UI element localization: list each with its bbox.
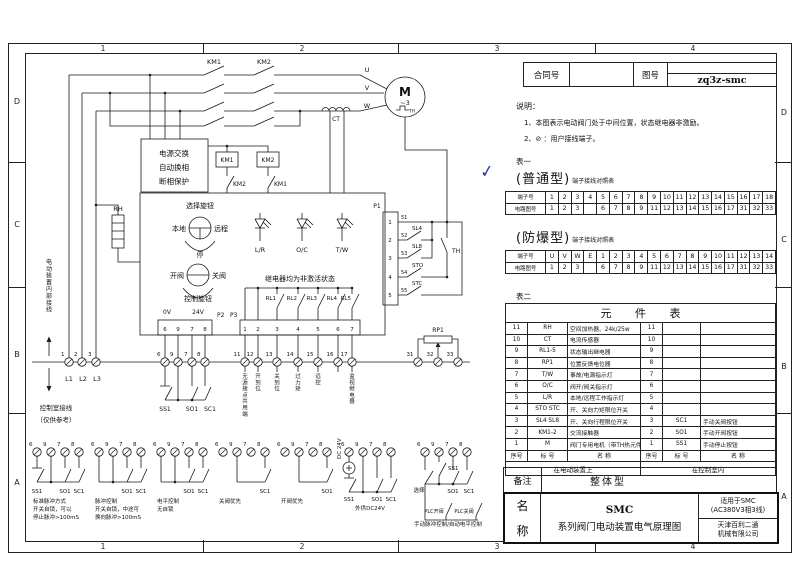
zone-top-2: 2 [282,44,322,53]
comp-header: 名 称 [568,451,641,463]
g7-plc-close: PLC关阀 [454,508,473,515]
terminal-cell: 11 [725,251,738,263]
g4-sc1: SC1 [260,489,271,495]
terminal-cell: 1 [546,192,559,204]
motor-m-label: M [399,85,411,99]
g3-so1: SO1 [183,489,194,495]
wire-52: 52 [401,233,407,239]
relay-state-note: 继电器均为非激活状态 [265,274,335,283]
terminal-cell: 4 [635,251,648,263]
terminal-number: 6 [157,352,161,358]
rh-label: RH [113,205,123,213]
terminal-cell: 7 [610,204,623,216]
terminal-number: 9 [167,442,171,448]
comp-no: 2 [506,427,528,439]
applicable-line2: (AC380V3相3线) [711,506,765,515]
zone-divider [8,287,25,288]
terminal-number: 9 [291,442,295,448]
led-tw-label: T/W [335,246,349,254]
terminal-cell: 2 [559,204,572,216]
terminal-cell: 7 [623,192,636,204]
component-table-title: 元 件 表 [506,304,776,323]
power-box-line1: 电源交换 [159,148,189,158]
terminal-8: 8 [195,442,207,456]
terminal-17: 17 [341,352,357,366]
comp-name: 事故/电源指示灯 [568,369,641,381]
name-label-top: 名 [516,497,528,514]
p1-pin1: 1 [388,220,392,226]
comp-no: 9 [506,346,528,358]
stc-label: STC [412,281,423,287]
p1-wires [398,222,462,295]
terminal-number: 8 [319,442,323,448]
approval-checkmark: ✓ [479,161,496,183]
terminal-cell: 8 [623,263,636,275]
so1-label: SO1 [186,406,199,413]
zone-divider [203,540,204,552]
terminal-number: 7 [57,442,61,448]
comp-tag [663,335,701,347]
led-lr [255,213,271,241]
terminal-number: 31 [407,352,414,358]
terminal-7: 7 [119,442,131,456]
terminal-number: 8 [197,352,201,358]
comp-name: 开、关向行程限位开关 [568,416,641,428]
comp-tag: RH [528,323,568,335]
zone-right-b: B [776,362,792,371]
phase-u-label: U [365,66,370,74]
terminal-cell: 6 [597,204,610,216]
rh-heater [112,215,124,248]
km1-interlock-label: KM1 [274,181,287,188]
remote-ctrl-label: 远控 [315,372,321,386]
g1-desc1: 标准脉冲方式 [33,497,67,505]
terminal-cell: 14 [687,263,700,275]
p1-pin4: 4 [388,275,392,281]
comp-name [701,381,776,393]
group3 [161,456,209,482]
row-label: 电路图号 [506,204,546,216]
title-block: 合同号 图号 zq3z-smc [523,62,777,87]
apply-company-cell: 适用于SMC (AC380V3相3线) 天津百利二通 机械有限公司 [699,494,777,542]
zone-top-4: 4 [673,44,713,53]
sc1-label: SC1 [204,406,216,413]
explosion-type-title: (防爆型) [516,227,570,246]
comp-header: 序号 [641,451,663,463]
comp-name: 手动开阀按钮 [701,427,776,439]
terminal-8: 8 [71,442,83,456]
comp-tag [663,369,701,381]
zone-divider [8,162,25,163]
p3-pin-4: 4 [296,327,300,333]
explosion-type-heading: (防爆型) 端子接线对照表 [516,227,614,246]
p3-pin-6: 6 [336,327,340,333]
terminal-cell: 7 [674,251,687,263]
terminal-number: 8 [133,442,137,448]
comp-no: 4 [506,404,528,416]
contact-blades [204,66,275,188]
comp-tag [663,346,701,358]
km2-coil-label: KM2 [262,157,275,164]
terminal-cell: 16 [712,204,725,216]
km2-label: KM2 [257,58,271,66]
terminal-cell: 33 [763,263,776,275]
p1-label: P1 [373,203,381,210]
terminal-9: 9 [105,442,117,456]
rl5-label: RL5 [341,296,352,302]
led-tw [337,213,353,241]
terminal-number: 7 [119,442,123,448]
p3-pin-3: 3 [275,327,279,333]
terminal-cell: 15 [699,204,712,216]
terminal-cell: 11 [648,204,661,216]
terminal-cell: 14 [687,204,700,216]
comp-no: 1 [641,439,663,451]
terminal-7: 7 [243,442,255,456]
g1-ss1: SS1 [32,489,42,495]
terminal-number: 7 [445,442,449,448]
comp-name [701,369,776,381]
comp-no: 4 [641,404,663,416]
terminal-14: 14 [287,352,303,366]
g2-desc2: 开关自锁，中途可 [95,505,140,513]
terminal-cell: 1 [546,204,559,216]
normal-terminal-table: 端子号123456789101112131415161718电路图号123678… [505,191,776,215]
room-buttons [160,366,211,400]
g7-so1: SO1 [447,489,458,495]
comp-no: 2 [641,427,663,439]
terminal-number: 6 [153,442,157,448]
terminal-number: 6 [91,442,95,448]
terminal-cell: 12 [687,192,700,204]
p2-pin-8: 8 [203,327,207,333]
terminal-cell: 17 [725,263,738,275]
drawing-no-value: zq3z-smc [668,74,776,86]
comp-tag [663,323,701,335]
terminal-number: 9 [170,352,174,358]
terminal-cell: 3 [572,204,585,216]
terminal-cell: 10 [712,251,725,263]
stop-label: 停 [197,250,204,259]
comp-tag [663,358,701,370]
terminal-cell: 9 [635,204,648,216]
terminal-cell: 2 [559,263,572,275]
terminal-cell: 8 [623,204,636,216]
terminal-6: 6 [277,442,289,456]
drawing-no-blank [668,63,776,74]
terminal-cell: 9 [699,251,712,263]
zone-left-d: D [9,97,25,106]
g1-sc1: SC1 [74,489,85,495]
series-description: 系列阀门电动装置电气原理图 [558,519,682,533]
terminal-number: 32 [427,352,434,358]
comp-no: 3 [506,416,528,428]
g3-desc1: 电平控制 [157,497,180,505]
remark-row: 备注 整体型 [503,467,777,494]
contract-no-label: 合同号 [524,63,570,86]
led-lr-label: L/R [255,246,266,254]
rl2-label: RL2 [287,296,297,302]
terminal-cell: 5 [597,192,610,204]
g6-sc1: SC1 [386,497,397,503]
comp-no: 10 [641,335,663,347]
wire-54: 54 [401,270,407,276]
p3-pin-1: 1 [243,327,247,333]
zone-left-c: C [9,220,25,229]
p3-pin-2: 2 [256,327,260,333]
group6 [344,456,397,492]
terminal-33: 33 [447,352,463,366]
zone-divider [203,43,204,53]
comp-name [701,404,776,416]
comp-no: 6 [506,381,528,393]
terminal-cell [584,204,597,216]
terminal-cell: 8 [635,192,648,204]
terminal-32: 32 [427,352,443,366]
terminal-9: 9 [170,352,182,366]
comp-header: 标 号 [663,451,701,463]
zone-top-1: 1 [83,44,123,53]
terminal-number: 15 [307,352,314,358]
p2-pin-6: 6 [163,327,167,333]
rl3-label: RL3 [307,296,318,302]
group5 [299,456,333,482]
g7-plc-open: PLC开阀 [424,508,443,515]
sto-label: STO [412,263,424,269]
group1 [32,456,85,482]
note-1: 1、本图表示电动阀门处于中间位置，状态继电器非激励。 [524,118,703,128]
normal-type-heading: (普通型) 端子接线对照表 [516,168,614,187]
terminal-cell: 13 [699,192,712,204]
comp-tag: KM1-2 [528,427,568,439]
terminal-cell: 17 [750,192,763,204]
junction-dots [47,74,455,494]
terminal-cell: E [584,251,597,263]
terminal-6: 6 [215,442,227,456]
terminal-cell: 12 [661,263,674,275]
name-label-cell: 名 称 [505,494,541,542]
explosion-terminal-table: 端子号UVWE1234567891011121314电路图号1236789111… [505,250,776,274]
terminal-3: 3 [88,352,100,366]
terminal-cell: 15 [699,263,712,275]
terminal-cell: 3 [572,192,585,204]
comp-name: 状态输出继电器 [568,346,641,358]
zone-divider [775,287,792,288]
comp-tag [663,404,701,416]
comp-name: 阀门专用电机（带TH热元件） [568,439,641,451]
comp-tag [663,393,701,405]
terminal-cell: 10 [661,192,674,204]
terminal-number: 17 [341,352,348,358]
pin-drops [165,335,352,358]
normal-type-subtitle: 端子接线对照表 [572,176,614,185]
p2-pin-9: 9 [176,327,180,333]
terminal-number: 11 [234,352,241,358]
terminal-cell: 32 [750,263,763,275]
terminal-number: 7 [181,442,185,448]
selector-knob-label: 选择旋钮 [186,201,214,210]
g3-desc2: 无自锁 [157,505,174,513]
terminal-number: 8 [195,442,199,448]
comp-no: 7 [641,369,663,381]
comp-no: 1 [506,439,528,451]
terminal-number: 7 [305,442,309,448]
terminal-cell: 31 [738,204,751,216]
terminal-number: 8 [257,442,261,448]
p3-label: P3 [230,312,238,319]
circuit-schematic: 1236978111213141516173132336978697869786… [25,53,487,540]
terminal-8: 8 [383,442,395,456]
terminal-number: 13 [266,352,273,358]
power-box-line2: 自动换相 [159,162,189,172]
terminal-cell: 11 [674,192,687,204]
comp-name [701,346,776,358]
terminal-number: 9 [355,442,359,448]
comp-tag: M [528,439,568,451]
comp-tag: T/W [528,369,568,381]
comp-no: 5 [641,393,663,405]
terminal-cell: 3 [623,251,636,263]
g6-so1: SO1 [371,497,382,503]
l1-label: L1 [65,375,73,383]
group2 [99,456,147,482]
row-label: 端子号 [506,192,546,204]
p3-pin-7: 7 [350,327,354,333]
km1-coil-label: KM1 [221,157,234,164]
terminal-7: 7 [445,442,457,456]
terminal-9: 9 [431,442,443,456]
terminal-6: 6 [153,442,165,456]
comp-name: 阀开/阀关指示灯 [568,381,641,393]
control-room-label2: （仅供参考） [37,415,76,424]
comp-name [701,393,776,405]
applicable-line1: 适用于SMC [720,497,755,506]
terminal-9: 9 [43,442,55,456]
terminal-cell: 13 [750,251,763,263]
relay-contacts [245,288,359,320]
comp-no: 3 [641,416,663,428]
close-valve-label: 关阀 [212,271,226,280]
notes-heading: 说明： [516,101,540,112]
normal-type-title: (普通型) [516,168,570,187]
row-label: 电路图号 [506,263,546,275]
terminal-15: 15 [307,352,323,366]
zone-left-a: A [9,478,25,487]
g3-sc1: SC1 [198,489,209,495]
terminal-number: 9 [43,442,47,448]
g4-desc: 关阀优先 [219,497,242,505]
terminal-cell: 4 [584,192,597,204]
zone-divider [595,43,596,53]
comp-tag: RL1-5 [528,346,568,358]
drawing-no-label: 图号 [634,63,668,86]
open-pos-label: 开到位 [255,373,261,393]
terminal-number: 3 [88,352,92,358]
comp-name: 手动停止按钮 [701,439,776,451]
terminal-9: 9 [229,442,241,456]
terminal-number: 7 [369,442,373,448]
explosion-type-subtitle: 端子接线对照表 [572,235,614,244]
terminal-cell: 6 [597,263,610,275]
motor-phase-label: ~3 [400,99,410,107]
terminal-cell: U [546,251,559,263]
comp-tag: RP1 [528,358,568,370]
g7-sc1: SC1 [464,489,475,495]
company-line1: 天津百利二通 [718,521,759,530]
sl4-label: SL4 [412,226,423,232]
name-label-bottom: 称 [516,522,528,539]
comp-name: 电流传感器 [568,335,641,347]
rl4-label: RL4 [327,296,338,302]
terminal-number: 8 [71,442,75,448]
l3-label: L3 [93,375,101,383]
main-control-box [140,193,385,335]
name-title-box: 名 称 SMC 系列阀门电动装置电气原理图 适用于SMC (AC380V3相3线… [503,492,779,544]
terminal-cell: V [559,251,572,263]
terminal-2: 2 [74,352,86,366]
control-room-label1: 控制室接线 [40,403,73,412]
wire-53: 53 [401,251,407,257]
p2-24v-label: 24V [192,309,205,316]
comp-tag: SO1 [663,427,701,439]
terminal-cell [584,263,597,275]
ct-label: CT [332,116,340,123]
remote-label: 远程 [214,224,228,233]
ct-coil [322,108,350,112]
g1-desc3: 停止脉冲>100mS [33,513,79,521]
series-title-cell: SMC 系列阀门电动装置电气原理图 [541,494,699,542]
sl8-label: SL8 [412,244,423,250]
comp-no: 11 [506,323,528,335]
zone-bottom-2: 2 [282,542,322,551]
comp-no: 8 [506,358,528,370]
terminal-number: 6 [417,442,421,448]
terminal-number: 1 [61,352,65,358]
terminal-cell: 14 [763,251,776,263]
motor-th-label: TH [408,109,415,115]
comp-name: 手动关阀按钮 [701,416,776,428]
g6-desc: 外供DC24V [355,504,385,512]
remark-label: 备注 [504,468,542,493]
p2-0v-label: 0V [163,309,172,316]
zone-divider [775,413,792,414]
terminal-cell: 9 [635,263,648,275]
terminal-number: 6 [29,442,33,448]
terminal-6: 6 [91,442,103,456]
zone-bottom-1: 1 [83,542,123,551]
terminal-cell: 17 [725,204,738,216]
terminal-number: 7 [243,442,247,448]
g6-ss1: SS1 [344,497,354,503]
terminal-8: 8 [257,442,269,456]
terminal-cell: 12 [661,204,674,216]
comp-no: 9 [641,346,663,358]
g2-so1: SO1 [121,489,132,495]
zone-right-c: C [776,235,792,244]
terminal-cell: 16 [712,263,725,275]
g7-select: 选择 [413,486,425,494]
g2-sc1: SC1 [136,489,147,495]
terminal-cell: 13 [674,204,687,216]
phase-v-label: V [365,84,370,92]
terminal-7: 7 [184,352,196,366]
drawing-no-cell: zq3z-smc [668,63,776,86]
comp-name: 本地/远程工作指示灯 [568,393,641,405]
comp-tag: SC1 [663,416,701,428]
terminal-8: 8 [133,442,145,456]
company-cell: 天津百利二通 机械有限公司 [699,519,777,543]
zone-divider [398,43,399,53]
